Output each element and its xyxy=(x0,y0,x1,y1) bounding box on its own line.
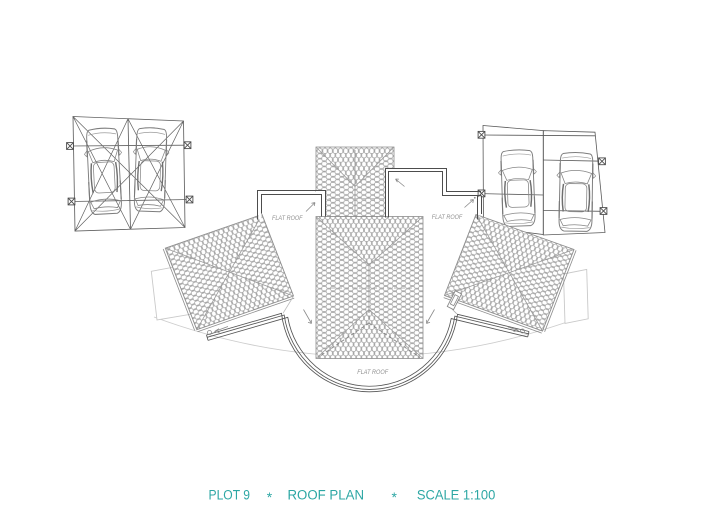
svg-text:FLAT ROOF: FLAT ROOF xyxy=(272,215,303,222)
svg-text:FLAT ROOF: FLAT ROOF xyxy=(432,214,463,221)
svg-text:SCALE 1:100: SCALE 1:100 xyxy=(417,488,495,503)
svg-text:FLAT ROOF: FLAT ROOF xyxy=(357,369,389,376)
svg-text:ROOF PLAN: ROOF PLAN xyxy=(288,488,365,503)
svg-text:PLOT 9: PLOT 9 xyxy=(209,488,251,503)
svg-text:*: * xyxy=(267,489,273,505)
svg-text:*: * xyxy=(392,489,398,505)
